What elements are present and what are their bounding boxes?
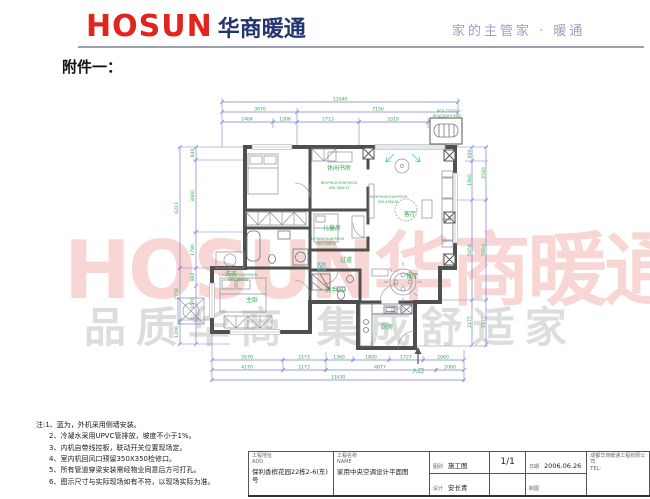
company-line2: TEL: bbox=[590, 466, 646, 472]
document-page: HOSUN 华商暖通 家的主管家 · 暖通 附件一： HOSUN华商暖通 品质华… bbox=[0, 0, 650, 499]
doors bbox=[294, 183, 415, 348]
note-line: 3、内机自带线控板，联动开关位置现场定。 bbox=[49, 443, 214, 454]
dim-label: 1800 bbox=[365, 355, 377, 361]
note-line: 2、冷凝水采用UPVC管排放，坡度不小于1%。 bbox=[49, 431, 214, 442]
title-block-category-cell: 图别 施工图 bbox=[429, 452, 489, 474]
category-label: 图别 bbox=[433, 464, 443, 470]
company-line1: 成都华商暖通工程有限公司 bbox=[590, 453, 646, 466]
note-line: 6、图示尺寸与实际现场如有不符，以现场实际为准。 bbox=[49, 477, 214, 488]
title-block-empty-cell bbox=[490, 474, 526, 497]
room-label-study: 休闲书房 bbox=[327, 164, 351, 172]
title-block-page-cell: 1/1 bbox=[490, 452, 526, 474]
company-logo: HOSUN 华商暖通 bbox=[86, 12, 306, 42]
room-label-entry: 入口 bbox=[412, 368, 424, 375]
dim-label: 3570 bbox=[241, 355, 253, 361]
room-label-kids: 儿童房 bbox=[323, 224, 341, 232]
note-line: 5、所有管道穿梁安装需经物业同意后方可打孔。 bbox=[49, 465, 214, 476]
dim-label: 1940 bbox=[467, 174, 473, 186]
room-label-kitchen: 厨房 bbox=[381, 323, 393, 331]
title-block-designer-cell: 设计 安长青 bbox=[429, 474, 489, 497]
unit-spec: 600*300*(350) bbox=[433, 113, 462, 118]
dim-label: 2175 bbox=[467, 316, 473, 328]
room-label-dining: 餐厅 bbox=[406, 272, 418, 280]
title-block-company-cell: 成都华商暖通工程有限公司 TEL: bbox=[587, 452, 650, 497]
dim-label: 600 bbox=[467, 150, 473, 159]
dim-label: 2173 bbox=[298, 355, 310, 361]
date-value: 2006.06.26 bbox=[544, 462, 581, 470]
attachment-label: 附件一： bbox=[62, 56, 122, 77]
header-divider bbox=[78, 46, 644, 48]
dim-label: 7150 bbox=[372, 107, 384, 113]
floor-plan: 11040 3670 7150 2464 1206 2713 3319 700 … bbox=[160, 88, 500, 388]
dim-label: 13430 bbox=[331, 375, 346, 381]
dim-label: 4170 bbox=[241, 365, 253, 371]
page-number: 1/1 bbox=[493, 453, 522, 471]
note-line: 4、室内机回风口预留350X350检修口。 bbox=[49, 454, 214, 465]
note-line: 注:1、蓝为，外机采用侧墙安装。 bbox=[36, 420, 214, 431]
dim-label: 2713 bbox=[322, 117, 334, 123]
unit-model: KM-25W-D bbox=[316, 241, 336, 246]
address-label-en: ADD. bbox=[252, 459, 330, 465]
category-value: 施工图 bbox=[448, 462, 468, 470]
dim-label: 2060 bbox=[444, 365, 456, 371]
project-name-label-en: NAME bbox=[337, 459, 426, 465]
dim-label: 3670 bbox=[254, 107, 266, 113]
dim-label: 2175 bbox=[481, 316, 487, 328]
dim-label: 2060 bbox=[437, 355, 449, 361]
unit-model: KM-36W-D bbox=[329, 185, 349, 190]
dim-label: 6213 bbox=[174, 202, 180, 214]
room-label-bath: 洗手间 bbox=[325, 286, 343, 294]
logo-text-en: HOSUN bbox=[86, 12, 213, 42]
title-block-name-cell: 工程名称 NAME 家用中央空调设计平面图 bbox=[334, 452, 430, 497]
dim-label: 1200 bbox=[174, 326, 180, 338]
notes-list: 注:1、蓝为，外机采用侧墙安装。 2、冷凝水采用UPVC管排放，坡度不小于1%。… bbox=[36, 420, 214, 488]
dim-label: 1360 bbox=[333, 355, 345, 361]
project-name-value: 家用中央空调设计平面图 bbox=[337, 468, 426, 476]
room-label-living: 客厅 bbox=[404, 210, 416, 218]
title-block-date-cell: 日期 2006.06.26 bbox=[525, 452, 586, 474]
designer-value: 安长青 bbox=[448, 484, 468, 492]
dim-label: 1790 bbox=[190, 244, 196, 256]
date-label: 日期 bbox=[529, 464, 539, 470]
title-block-draft-cell: 制图 bbox=[525, 474, 586, 497]
company-slogan: 家的主管家 · 暖通 bbox=[452, 20, 585, 39]
room-label-corridor: 过道 bbox=[340, 256, 352, 264]
logo-text-cn: 华商暖通 bbox=[218, 19, 306, 41]
dim-label: 4877 bbox=[374, 365, 386, 371]
dim-label: 3319 bbox=[387, 117, 399, 123]
dim-label: 11040 bbox=[333, 97, 348, 103]
dim-label: 5656 bbox=[467, 244, 473, 256]
room-label-master: 主卧 bbox=[246, 296, 258, 304]
dim-label: 962 bbox=[190, 273, 196, 282]
dim-label: 1206 bbox=[279, 117, 291, 123]
dim-label: 640 bbox=[190, 149, 196, 158]
unit-annotations: 600*900*200*MOD KM-36W-D 740*900*200*MOD… bbox=[218, 108, 461, 282]
dim-label: 3660 bbox=[190, 190, 196, 202]
dim-label: 1727 bbox=[400, 355, 412, 361]
draft-label: 制图 bbox=[529, 486, 539, 492]
dim-label: 2464 bbox=[241, 117, 253, 123]
dim-label: 2540 bbox=[481, 167, 487, 179]
designer-label: 设计 bbox=[433, 486, 443, 492]
dim-label: 2173 bbox=[298, 365, 310, 371]
address-value: 保利香槟花园22栋2-6(东)号 bbox=[252, 468, 330, 485]
dim-label: 5686 bbox=[481, 244, 487, 256]
walls bbox=[212, 147, 455, 348]
unit-model: KM-45W-D bbox=[378, 199, 398, 204]
title-block: 工程地址 ADD. 保利香槟花园22栋2-6(东)号 工程名称 NAME 家用中… bbox=[248, 451, 650, 497]
title-block-address-cell: 工程地址 ADD. 保利香槟花园22栋2-6(东)号 bbox=[249, 452, 334, 497]
unit-model: KM-28W-D bbox=[228, 277, 248, 282]
